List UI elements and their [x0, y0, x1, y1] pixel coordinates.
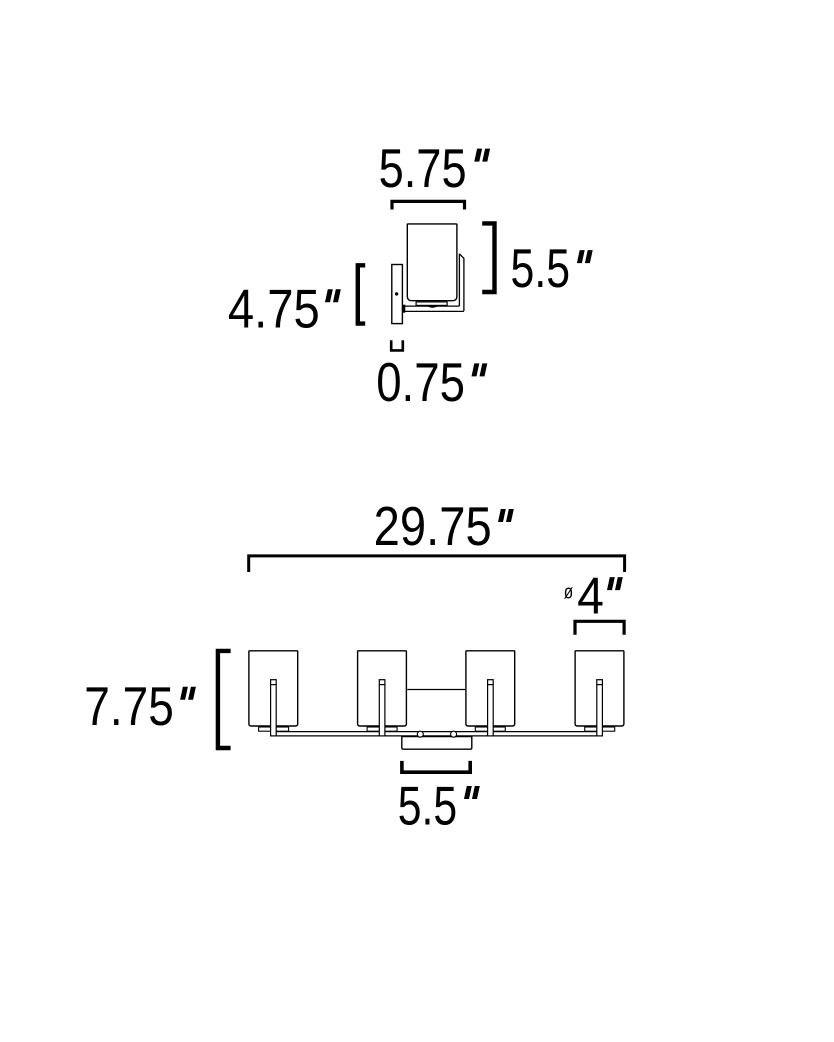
svg-text:0.75: 0.75	[376, 352, 465, 413]
svg-text:5.75: 5.75	[379, 138, 467, 199]
svg-text:ø: ø	[564, 581, 574, 604]
svg-text:7.75: 7.75	[84, 676, 174, 737]
svg-text:4: 4	[577, 567, 604, 625]
svg-text:5.5: 5.5	[398, 775, 457, 836]
svg-text:4.75: 4.75	[228, 279, 320, 340]
svg-text:29.75: 29.75	[374, 496, 492, 557]
svg-text:5.5: 5.5	[511, 238, 571, 299]
